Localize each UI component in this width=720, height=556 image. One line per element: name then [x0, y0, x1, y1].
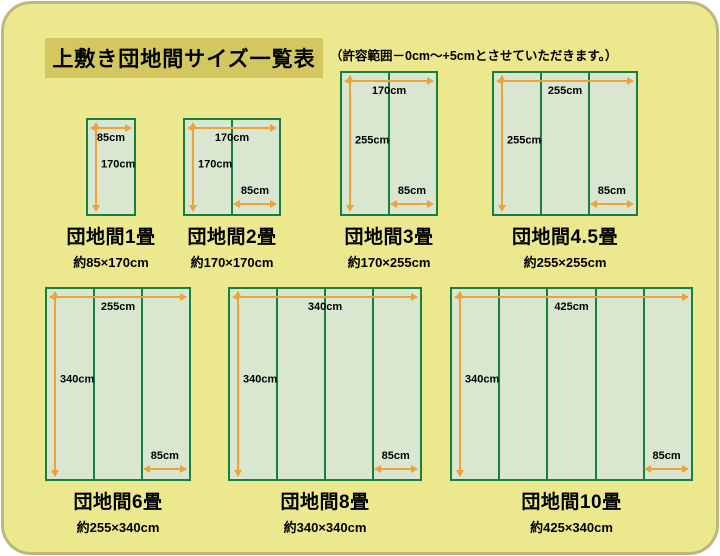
width-arrow	[50, 296, 186, 298]
tatami-rect: 255cm 255cm 85cm	[492, 71, 638, 216]
tatami-rect: 425cm 340cm 85cm	[450, 287, 693, 481]
diagram-title: 団地間1畳	[66, 222, 155, 249]
mat-width-label: 85cm	[144, 451, 186, 462]
diagram-caption: 団地間6畳 約255×340cm	[73, 487, 162, 536]
diagram-title: 団地間2畳	[187, 222, 276, 249]
mat-width-label: 85cm	[234, 186, 276, 197]
tatami-rect: 255cm 340cm 85cm	[45, 287, 191, 481]
tatami-mat	[597, 289, 645, 479]
diagram-danchima-8jo: 340cm 340cm 85cm 団地間8畳 約340×340cm	[228, 287, 422, 481]
mat-width-label: 85cm	[375, 451, 418, 462]
diagram-size: 約255×340cm	[73, 517, 162, 536]
width-label: 170cm	[185, 133, 279, 144]
diagram-danchima-3jo: 170cm 255cm 85cm 団地間3畳 約170×255cm	[340, 71, 438, 216]
mat-width-label: 85cm	[645, 451, 688, 462]
diagram-danchima-4-5jo: 255cm 255cm 85cm 団地間4.5畳 約255×255cm	[492, 71, 638, 216]
mat-width-arrow	[375, 468, 418, 470]
width-arrow	[233, 296, 417, 298]
tatami-mat	[95, 289, 143, 479]
height-arrow	[237, 292, 239, 476]
mat-width-arrow	[645, 468, 688, 470]
diagram-title: 団地間6畳	[73, 487, 162, 514]
mat-width-arrow	[144, 468, 186, 470]
diagram-danchima-6jo: 255cm 340cm 85cm 団地間6畳 約255×340cm	[45, 287, 191, 481]
tatami-rect: 170cm 170cm 85cm	[183, 118, 281, 216]
diagram-title: 団地間8畳	[280, 487, 369, 514]
tatami-rect: 85cm 170cm	[86, 118, 136, 216]
tatami-mat	[278, 289, 326, 479]
page-title: 上敷き団地間サイズ一覧表	[52, 43, 315, 73]
height-label: 340cm	[243, 375, 277, 386]
tatami-mat	[500, 289, 548, 479]
width-arrow	[345, 80, 433, 82]
diagram-caption: 団地間1畳 約85×170cm	[66, 222, 155, 271]
diagram-caption: 団地間2畳 約170×170cm	[187, 222, 276, 271]
diagram-caption: 団地間8畳 約340×340cm	[280, 487, 369, 536]
tatami-rect: 340cm 340cm 85cm	[228, 287, 422, 481]
mat-width-arrow	[234, 203, 276, 205]
diagram-size: 約170×255cm	[344, 252, 433, 271]
diagram-caption: 団地間3畳 約170×255cm	[344, 222, 433, 271]
height-arrow	[54, 292, 56, 476]
diagram-danchima-2jo: 170cm 170cm 85cm 団地間2畳 約170×170cm	[183, 118, 281, 216]
width-arrow	[455, 296, 688, 298]
tatami-mat	[548, 289, 596, 479]
width-arrow	[188, 127, 276, 129]
width-arrow	[497, 80, 633, 82]
height-arrow	[459, 292, 461, 476]
diagram-caption: 団地間4.5畳 約255×255cm	[512, 222, 618, 271]
diagram-size: 約255×255cm	[512, 252, 618, 271]
diagram-size: 約425×340cm	[521, 517, 621, 536]
height-arrow	[501, 76, 503, 211]
diagram-size: 約85×170cm	[66, 252, 155, 271]
height-label: 340cm	[60, 375, 94, 386]
diagram-danchima-10jo: 425cm 340cm 85cm 団地間10畳 約425×340cm	[450, 287, 693, 481]
tatami-rect: 170cm 255cm 85cm	[340, 71, 438, 216]
width-label: 255cm	[47, 302, 189, 313]
diagram-caption: 団地間10畳 約425×340cm	[521, 487, 621, 536]
width-label: 170cm	[342, 86, 436, 97]
height-arrow	[192, 123, 194, 211]
diagram-title: 団地間10畳	[521, 487, 621, 514]
mat-width-arrow	[391, 203, 433, 205]
height-label: 170cm	[101, 160, 135, 171]
diagram-size: 約340×340cm	[280, 517, 369, 536]
height-label: 340cm	[465, 375, 499, 386]
diagram-title: 団地間3畳	[344, 222, 433, 249]
mat-width-arrow	[591, 203, 633, 205]
diagram-size: 約170×170cm	[187, 252, 276, 271]
height-label: 255cm	[507, 135, 541, 146]
width-label: 255cm	[494, 86, 636, 97]
height-label: 170cm	[198, 160, 232, 171]
height-label: 255cm	[355, 135, 389, 146]
height-arrow	[95, 123, 97, 211]
width-label: 340cm	[230, 302, 420, 313]
tatami-mat	[326, 289, 374, 479]
mat-width-label: 85cm	[591, 186, 633, 197]
height-arrow	[349, 76, 351, 211]
mat-width-label: 85cm	[391, 186, 433, 197]
page-title-box: 上敷き団地間サイズ一覧表	[45, 38, 323, 78]
width-label: 425cm	[452, 302, 691, 313]
tolerance-note: （許容範囲－0cm～+5cmとさせていただきます。）	[330, 45, 617, 64]
diagram-title: 団地間4.5畳	[512, 222, 618, 249]
diagram-danchima-1jo: 85cm 170cm 団地間1畳 約85×170cm	[86, 118, 136, 216]
size-chart-image: 上敷き団地間サイズ一覧表 （許容範囲－0cm～+5cmとさせていただきます。） …	[0, 0, 720, 556]
